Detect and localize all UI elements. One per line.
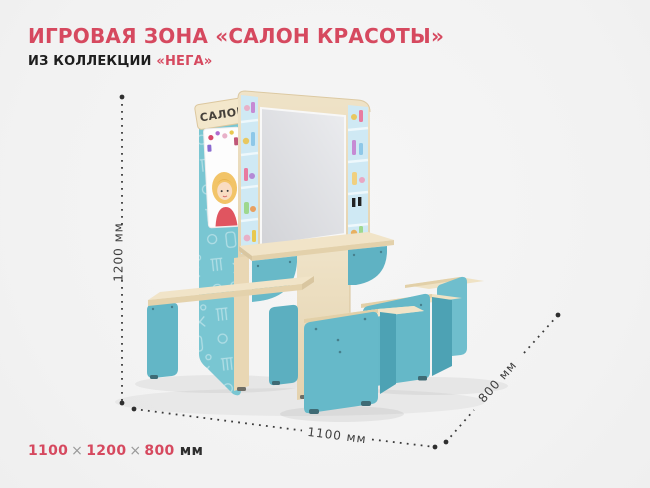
- page-background: ИГРОВАЯ ЗОНА «САЛОН КРАСОТЫ» ИЗ КОЛЛЕКЦИ…: [0, 0, 650, 488]
- bench-support-left: [147, 303, 178, 378]
- mirror-panel: [238, 91, 370, 258]
- dimension-label-width: 1100 мм: [307, 425, 368, 446]
- summary-times-2: ×: [126, 443, 144, 459]
- dimension-label-height: 1200 мм: [112, 222, 126, 281]
- desk-side-board: [234, 256, 249, 391]
- summary-width: 1100: [28, 443, 68, 459]
- furniture-illustration: САЛОН: [0, 0, 650, 488]
- summary-height: 1200: [86, 443, 126, 459]
- cosmetic-shelf-strip-right: [348, 105, 368, 244]
- cosmetic-shelf-strip-left: [241, 95, 258, 254]
- size-summary: 1100×1200×800 мм: [28, 443, 203, 459]
- bench-support-right: [269, 305, 298, 385]
- summary-unit: мм: [175, 443, 204, 459]
- summary-depth: 800: [144, 443, 174, 459]
- mirror: [261, 108, 345, 246]
- summary-times-1: ×: [68, 443, 86, 459]
